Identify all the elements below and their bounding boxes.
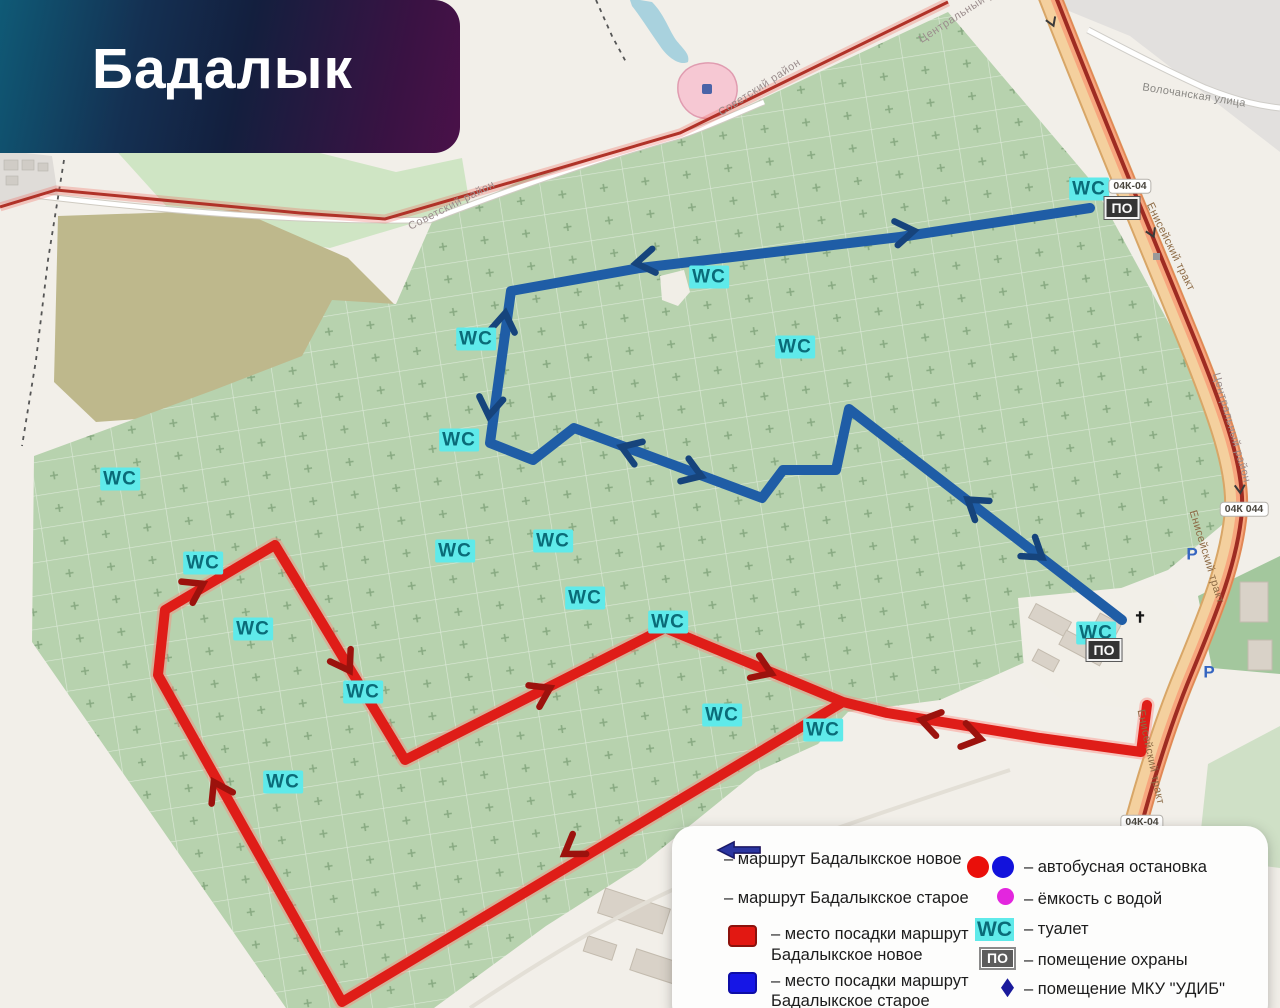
wc-label: WC bbox=[343, 681, 383, 704]
guard-post-label: ПО bbox=[1105, 197, 1140, 219]
wc-label: WC bbox=[1069, 178, 1109, 201]
wc-label: WC bbox=[456, 328, 496, 351]
legend-label: – маршрут Бадалыкское старое bbox=[724, 887, 969, 909]
legend-item-boarding-old: – место посадки маршрут Бадалыкское стар… bbox=[714, 970, 991, 1008]
wc-label: WC bbox=[648, 611, 688, 634]
wc-label: WC bbox=[100, 468, 140, 491]
water-tank-icon bbox=[997, 888, 1014, 905]
page-title: Бадалык bbox=[92, 36, 353, 102]
legend-panel: – маршрут Бадалыкское новое – маршрут Ба… bbox=[672, 826, 1268, 1008]
boarding-old-square-icon bbox=[728, 972, 757, 994]
wc-label: WC bbox=[803, 719, 843, 742]
wc-symbol-icon: WC bbox=[975, 918, 1014, 941]
parking-label: Р bbox=[1186, 546, 1197, 563]
guard-symbol-icon: ПО bbox=[981, 949, 1014, 968]
road-ref: 04К-04 bbox=[1108, 179, 1151, 194]
bus-stop-blue-icon bbox=[992, 856, 1014, 878]
udib-diamond-icon bbox=[1001, 978, 1014, 997]
legend-column-left: – маршрут Бадалыкское новое – маршрут Ба… bbox=[714, 840, 991, 1008]
map-screenshot: WC WC WC WC WC WC WC WC WC WC WC WC WC W… bbox=[0, 0, 1280, 1008]
legend-item-guard: ПО – помещение охраны bbox=[958, 949, 1225, 971]
wc-label: WC bbox=[702, 704, 742, 727]
legend-column-right: – автобусная остановка – ёмкость с водой… bbox=[958, 850, 1225, 1000]
legend-item-route-old: – маршрут Бадалыкское старое bbox=[714, 887, 991, 909]
legend-label: – ёмкость с водой bbox=[1024, 888, 1162, 910]
wc-label: WC bbox=[565, 587, 605, 610]
church-cross-icon: ✝ bbox=[1134, 611, 1147, 626]
legend-item-boarding-new: – место посадки маршрут Бадалыкское ново… bbox=[714, 923, 991, 965]
wc-label: WC bbox=[533, 530, 573, 553]
wc-label: WC bbox=[183, 552, 223, 575]
wc-label: WC bbox=[435, 540, 475, 563]
legend-label: – помещение охраны bbox=[1024, 949, 1188, 971]
legend-item-udib: – помещение МКУ "УДИБ" bbox=[958, 978, 1225, 1000]
legend-item-wc: WC – туалет bbox=[958, 918, 1225, 941]
legend-label: – туалет bbox=[1024, 918, 1089, 940]
legend-item-bus-stop: – автобусная остановка bbox=[958, 856, 1225, 878]
wc-label: WC bbox=[689, 266, 729, 289]
road-ref: 04К 044 bbox=[1220, 502, 1269, 517]
poi-icon bbox=[702, 84, 712, 94]
title-banner: Бадалык bbox=[0, 0, 460, 153]
boarding-new-square-icon bbox=[728, 925, 757, 947]
wc-label: WC bbox=[439, 429, 479, 452]
wc-label: WC bbox=[263, 771, 303, 794]
wc-label: WC bbox=[233, 618, 273, 641]
legend-item-water-tank: – ёмкость с водой bbox=[958, 888, 1225, 910]
bus-stop-red-icon bbox=[967, 856, 989, 878]
wc-label: WC bbox=[775, 336, 815, 359]
parking-label: Р bbox=[1203, 664, 1214, 681]
guard-post-label: ПО bbox=[1087, 639, 1122, 661]
legend-label: – автобусная остановка bbox=[1024, 856, 1207, 878]
legend-label: – помещение МКУ "УДИБ" bbox=[1024, 978, 1225, 1000]
